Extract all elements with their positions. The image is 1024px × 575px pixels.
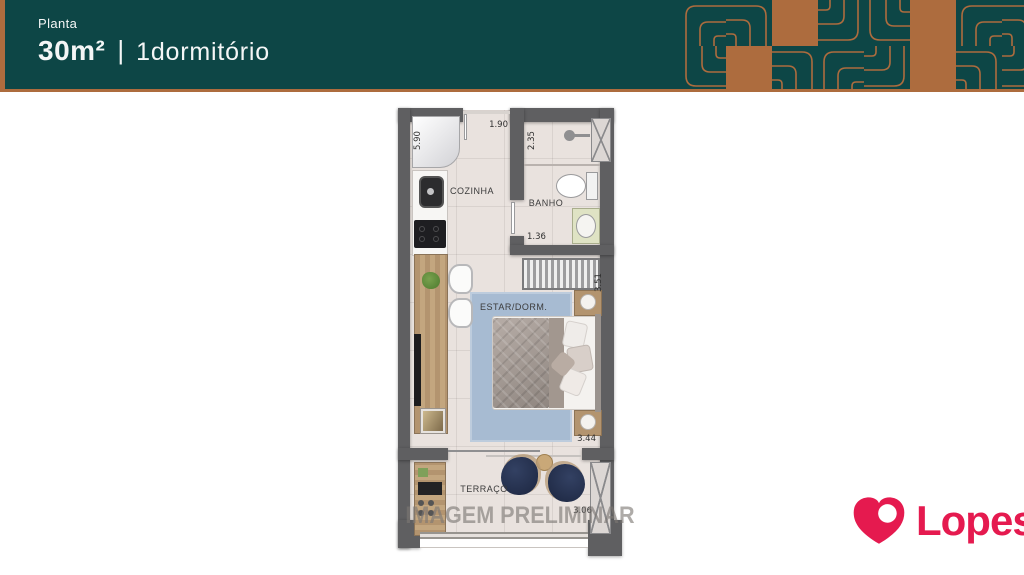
stove-burner-icon xyxy=(419,236,425,242)
toilet-tank xyxy=(586,172,598,200)
balcony-slab-edge xyxy=(420,539,588,548)
bed-blanket xyxy=(493,318,549,408)
dim-living-width: 3.44 xyxy=(566,434,596,444)
plan-area: 30m² xyxy=(38,35,105,67)
entry-door-threshold xyxy=(463,111,510,114)
headline-separator: | xyxy=(117,35,124,66)
stove-burner-icon xyxy=(433,236,439,242)
bar-item-green xyxy=(418,468,428,477)
table-lamp-icon xyxy=(580,294,596,310)
room-label-kitchen: COZINHA xyxy=(442,186,502,196)
tv xyxy=(414,334,421,406)
header-banner: Planta 30m² | 1dormitório xyxy=(0,0,1024,92)
sink-faucet-icon xyxy=(427,188,434,195)
plant-icon xyxy=(422,272,440,289)
plan-bedrooms: 1dormitório xyxy=(136,38,270,67)
armchair xyxy=(548,464,585,502)
side-table xyxy=(536,454,553,471)
stove-burner-icon xyxy=(433,226,439,232)
room-label-living: ESTAR/DORM. xyxy=(480,302,546,312)
duct-shaft-icon xyxy=(591,118,611,162)
table-lamp-icon xyxy=(580,414,596,430)
entry-door xyxy=(464,114,467,140)
dim-shower-depth: 2.35 xyxy=(527,118,537,150)
wall-under-bath xyxy=(510,245,614,255)
wall-bath-divider-upper xyxy=(510,108,524,200)
plan-headline: 30m² | 1dormitório xyxy=(38,35,270,67)
bath-door xyxy=(511,202,515,234)
dim-unit-length: 5.90 xyxy=(413,118,423,150)
preliminary-image-watermark: IMAGEM PRELIMINAR xyxy=(405,502,635,530)
sliding-door-track xyxy=(448,450,540,452)
dim-bath-width: 1.36 xyxy=(527,232,557,242)
decor-tray-art xyxy=(423,411,443,431)
plan-eyebrow: Planta xyxy=(38,16,270,31)
stool xyxy=(448,298,473,328)
terrace-railing xyxy=(420,532,588,539)
dim-kitchen-width: 1.90 xyxy=(482,120,508,130)
toilet-bowl xyxy=(556,174,586,198)
header-text-block: Planta 30m² | 1dormitório xyxy=(38,16,270,67)
bed-headboard xyxy=(595,314,601,412)
dim-wardrobe-span: 3.51 xyxy=(594,258,604,292)
room-label-terrace: TERRAÇO xyxy=(454,484,514,494)
lopes-logo-text: Lopes xyxy=(916,497,1024,545)
vanity-sink xyxy=(576,214,596,238)
lopes-logo: Lopes xyxy=(852,496,1024,546)
stool xyxy=(448,264,473,294)
shower-partition xyxy=(524,164,600,166)
shower-arm-icon xyxy=(574,134,590,137)
room-label-bath: BANHO xyxy=(524,198,568,208)
wall-terrace-left-stub xyxy=(398,448,448,460)
floor-plan: COZINHA BANHO ESTAR/DORM. TERRAÇO 5.90 1… xyxy=(398,102,622,554)
stove-burner-icon xyxy=(419,226,425,232)
heart-icon xyxy=(852,496,906,546)
wardrobe xyxy=(522,258,600,290)
sliding-door-track-2 xyxy=(486,455,582,457)
decorative-tile-pattern xyxy=(680,0,1024,89)
stove-cooktop xyxy=(414,220,446,248)
wall-left xyxy=(398,108,410,548)
bar-grill xyxy=(418,482,442,495)
wall-terrace-right-stub xyxy=(582,448,614,460)
